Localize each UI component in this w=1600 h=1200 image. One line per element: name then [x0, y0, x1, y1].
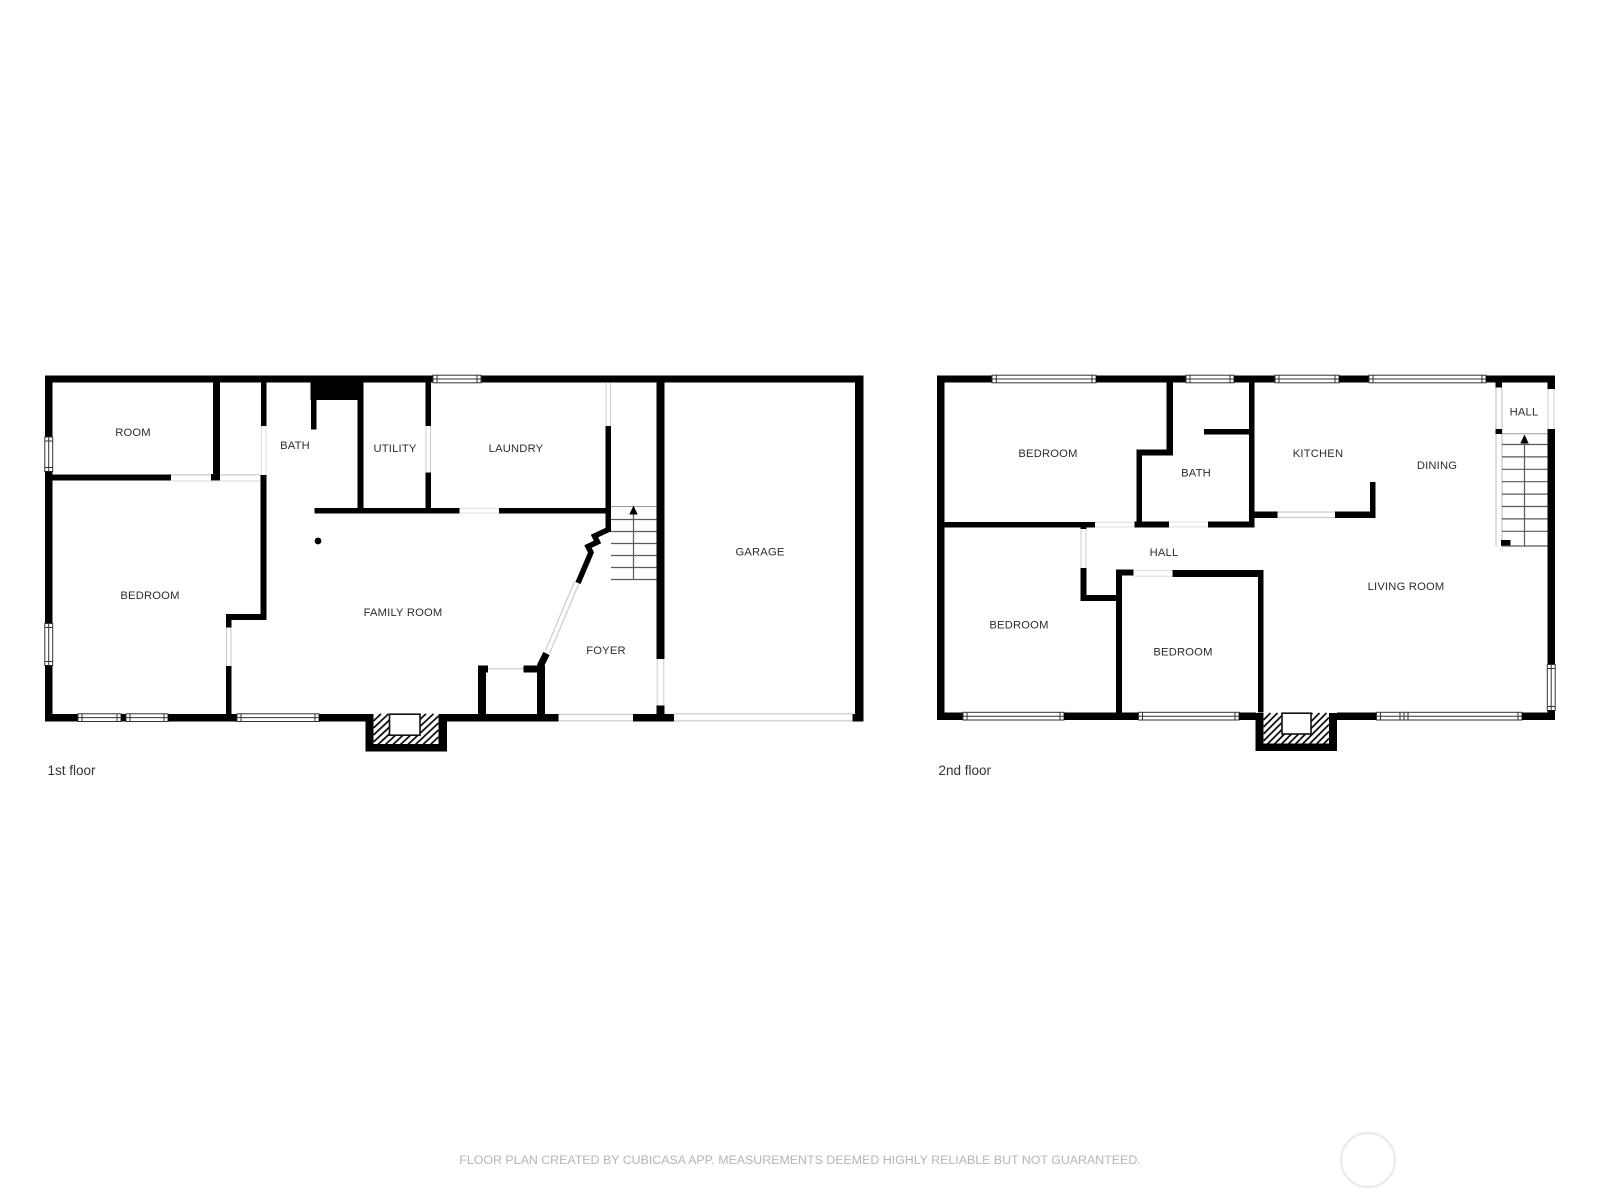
svg-text:KITCHEN: KITCHEN: [1293, 448, 1344, 460]
svg-text:BATH: BATH: [280, 440, 310, 452]
svg-text:2nd floor: 2nd floor: [939, 763, 992, 778]
svg-text:GARAGE: GARAGE: [735, 547, 784, 559]
svg-text:BEDROOM: BEDROOM: [1153, 647, 1212, 659]
svg-text:FOYER: FOYER: [586, 645, 626, 657]
svg-text:LAUNDRY: LAUNDRY: [489, 443, 544, 455]
svg-text:BEDROOM: BEDROOM: [989, 620, 1048, 632]
svg-text:FLOOR PLAN CREATED BY CUBICASA: FLOOR PLAN CREATED BY CUBICASA APP. MEAS…: [459, 1153, 1140, 1167]
svg-text:1st floor: 1st floor: [48, 763, 97, 778]
svg-text:HALL: HALL: [1510, 407, 1539, 419]
svg-text:BEDROOM: BEDROOM: [1018, 448, 1077, 460]
svg-text:DINING: DINING: [1417, 460, 1457, 472]
svg-text:LIVING ROOM: LIVING ROOM: [1368, 581, 1445, 593]
svg-text:HALL: HALL: [1150, 547, 1179, 559]
svg-text:BATH: BATH: [1181, 468, 1211, 480]
svg-text:FAMILY ROOM: FAMILY ROOM: [364, 607, 443, 619]
svg-text:ROOM: ROOM: [115, 427, 151, 439]
svg-text:BEDROOM: BEDROOM: [120, 590, 179, 602]
svg-text:UTILITY: UTILITY: [373, 443, 416, 455]
